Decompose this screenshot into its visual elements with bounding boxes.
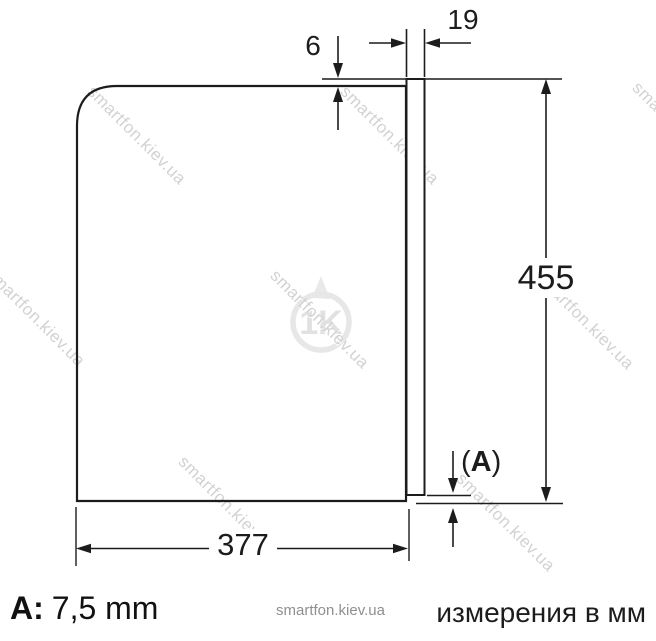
legend-a-value: A:7,5 mm <box>10 590 158 627</box>
dim-label-height: 455 <box>512 261 580 297</box>
site-caption: smartfon.kiev.ua <box>276 602 385 619</box>
dim-label-gap-ref: (A) <box>461 447 501 477</box>
arrow-up-icon <box>541 79 551 94</box>
paren-open: ( <box>461 446 471 478</box>
arrow-left-icon <box>76 544 91 554</box>
dim-A-arrows <box>448 451 458 547</box>
arrow-down-icon <box>541 487 551 502</box>
legend-key: A: <box>10 590 44 626</box>
door-panel <box>407 79 425 495</box>
appliance-body-outline <box>77 86 406 501</box>
paren-close: ) <box>492 446 502 478</box>
dim-19-arrows <box>369 38 471 48</box>
units-note: измерения в мм <box>436 597 646 629</box>
arrow-up-icon <box>448 508 458 523</box>
dim-label-width: 377 <box>209 529 277 562</box>
arrow-down-icon <box>448 478 458 493</box>
drawing-canvas <box>0 0 656 641</box>
dim-6-arrows <box>333 36 343 130</box>
arrow-right-icon <box>391 38 406 48</box>
dim-label-door-thickness: 19 <box>443 5 483 34</box>
gap-letter: A <box>471 446 492 478</box>
dim-label-top-gap: 6 <box>298 31 328 60</box>
arrow-up-icon <box>333 87 343 102</box>
arrow-left-icon <box>425 38 440 48</box>
arrow-right-icon <box>393 544 408 554</box>
technical-drawing-page: 1K smartfon.kiev.ua smartfon.kiev.ua sma… <box>0 0 656 641</box>
legend-value: 7,5 mm <box>52 590 159 626</box>
arrow-down-icon <box>333 63 343 78</box>
